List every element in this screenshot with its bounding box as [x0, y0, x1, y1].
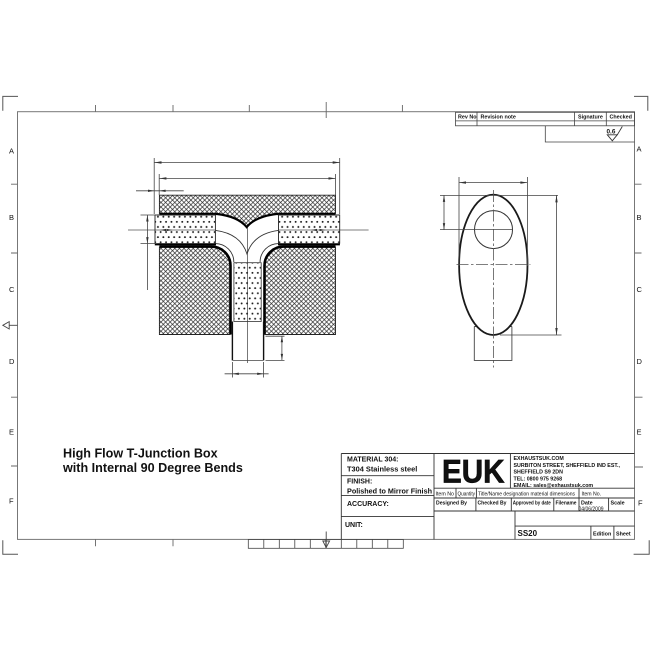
svg-text:MATERIAL 304:: MATERIAL 304:	[347, 457, 398, 464]
svg-text:A: A	[9, 147, 14, 156]
svg-text:Filename: Filename	[556, 501, 577, 507]
svg-text:Edition: Edition	[593, 532, 611, 538]
svg-text:TEL: 0800 975 9268: TEL: 0800 975 9268	[514, 476, 563, 482]
svg-text:ACCURACY:: ACCURACY:	[347, 501, 389, 508]
svg-text:SHEFFIELD S9 2DN: SHEFFIELD S9 2DN	[514, 470, 564, 476]
svg-text:D: D	[637, 357, 643, 366]
svg-text:SS20: SS20	[518, 529, 538, 538]
svg-text:Designed By: Designed By	[436, 501, 467, 507]
svg-text:Rev No: Rev No	[458, 115, 477, 121]
svg-text:C: C	[637, 285, 643, 294]
svg-text:FINISH:: FINISH:	[347, 479, 372, 486]
svg-text:Item No: Item No	[436, 491, 455, 497]
svg-text:UNIT:: UNIT:	[345, 522, 363, 529]
svg-text:Sheet: Sheet	[616, 532, 631, 538]
svg-text:D: D	[9, 357, 15, 366]
svg-text:Signature: Signature	[578, 115, 603, 121]
svg-text:EUK: EUK	[442, 454, 505, 490]
svg-text:04/06/2009: 04/06/2009	[579, 507, 604, 513]
svg-text:T304 Stainless steel: T304 Stainless steel	[347, 465, 417, 474]
svg-text:B: B	[637, 213, 642, 222]
svg-text:Quantity: Quantity	[458, 491, 476, 497]
svg-text:E: E	[9, 428, 14, 437]
svg-text:Approved by date: Approved by date	[513, 501, 551, 507]
svg-text:with Internal 90 Degree Bends: with Internal 90 Degree Bends	[62, 461, 243, 475]
svg-text:E: E	[637, 428, 642, 437]
svg-text:Item No.: Item No.	[582, 491, 602, 497]
svg-text:Title/Name designation materia: Title/Name designation material dimensio…	[478, 491, 575, 497]
svg-text:A: A	[637, 145, 642, 154]
svg-text:Checked: Checked	[610, 115, 632, 121]
svg-text:0.6: 0.6	[607, 129, 616, 136]
svg-text:Checked By: Checked By	[478, 501, 507, 507]
svg-text:Revision note: Revision note	[481, 115, 516, 121]
svg-text:SURBITON STREET, SHEFFIELD IND: SURBITON STREET, SHEFFIELD IND EST.,	[514, 463, 621, 469]
svg-text:EXHAUSTSUK.COM: EXHAUSTSUK.COM	[514, 456, 565, 462]
svg-text:EMAIL: sales@exhaustsuk.com: EMAIL: sales@exhaustsuk.com	[514, 483, 594, 489]
svg-text:F: F	[9, 497, 14, 506]
svg-text:C: C	[9, 285, 15, 294]
svg-text:Scale: Scale	[611, 501, 625, 507]
svg-text:High Flow T-Junction Box: High Flow T-Junction Box	[63, 446, 218, 460]
svg-text:F: F	[638, 499, 643, 508]
svg-text:B: B	[9, 213, 14, 222]
svg-text:Polished to Mirror Finish: Polished to Mirror Finish	[347, 487, 432, 496]
